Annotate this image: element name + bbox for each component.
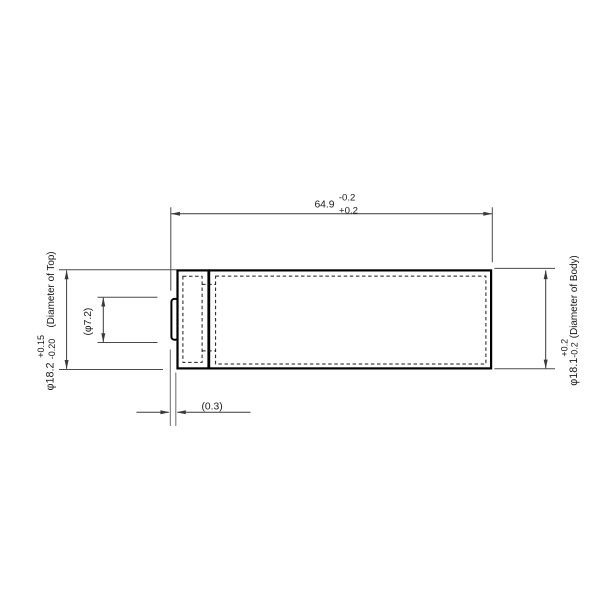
svg-text:-0.2: -0.2	[570, 342, 580, 358]
svg-text:(0.3): (0.3)	[202, 402, 223, 413]
svg-text:-0.2: -0.2	[339, 192, 356, 203]
svg-text:64.9: 64.9	[314, 200, 334, 211]
svg-text:φ18.1: φ18.1	[568, 358, 580, 386]
svg-text:(φ7.2): (φ7.2)	[83, 308, 94, 336]
svg-text:+0.2: +0.2	[339, 206, 358, 217]
svg-text:+0.15: +0.15	[36, 335, 46, 358]
svg-text:φ18.2: φ18.2	[45, 362, 57, 390]
svg-text:-0.20: -0.20	[47, 339, 57, 360]
svg-text:+0.2: +0.2	[560, 339, 570, 357]
svg-text:(Diameter of Body): (Diameter of Body)	[569, 255, 580, 338]
svg-text:(Diameter of Top): (Diameter of Top)	[46, 251, 57, 327]
